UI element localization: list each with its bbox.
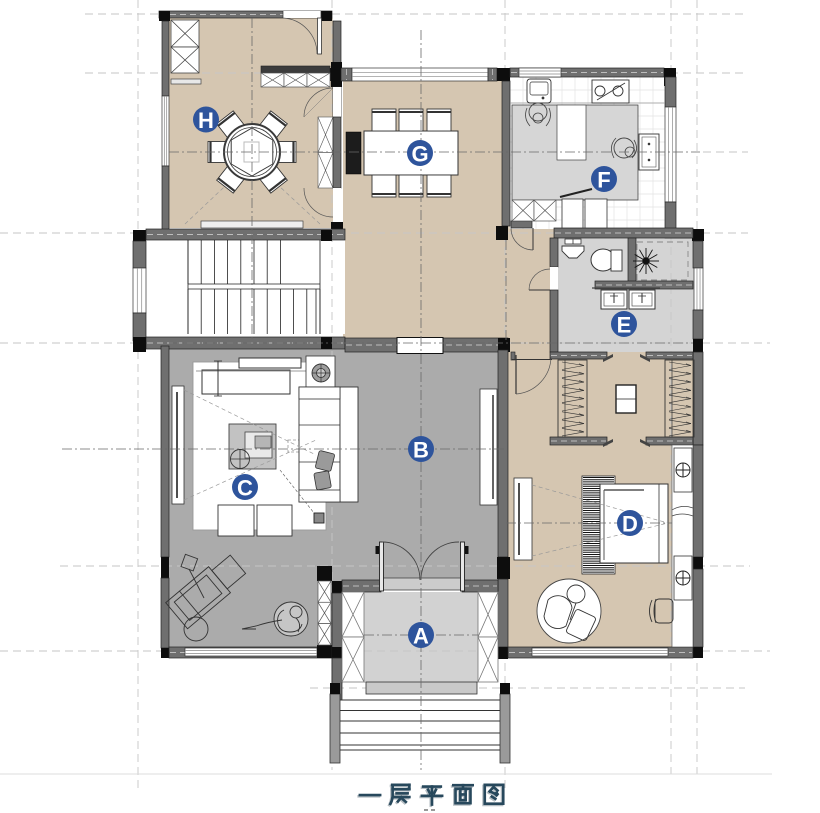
svg-text:H: H	[198, 108, 214, 133]
svg-text:D: D	[622, 512, 638, 537]
svg-text:B: B	[413, 438, 429, 463]
svg-text:A: A	[413, 624, 429, 649]
svg-text:E: E	[617, 313, 632, 338]
svg-text:F: F	[597, 168, 610, 193]
svg-text:C: C	[237, 476, 253, 501]
svg-text:G: G	[411, 142, 428, 167]
